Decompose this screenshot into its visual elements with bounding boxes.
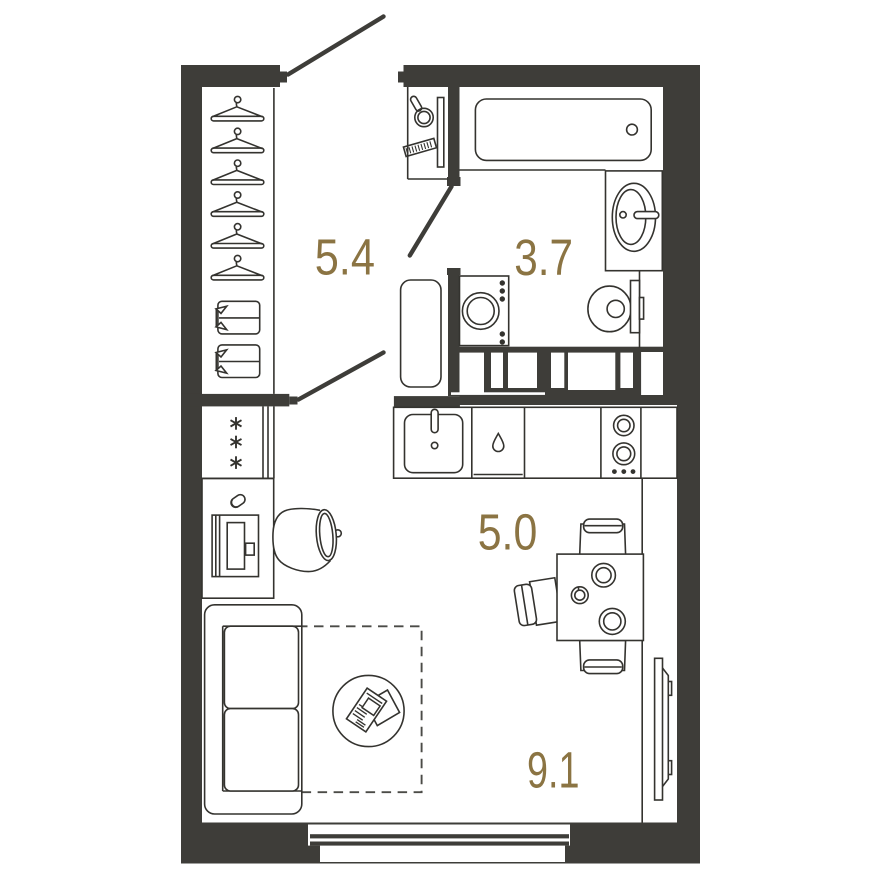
svg-text:3.7: 3.7 xyxy=(514,229,573,286)
svg-text:5.4: 5.4 xyxy=(315,228,375,285)
svg-text:5.0: 5.0 xyxy=(478,504,538,561)
svg-text:9.1: 9.1 xyxy=(527,741,580,798)
